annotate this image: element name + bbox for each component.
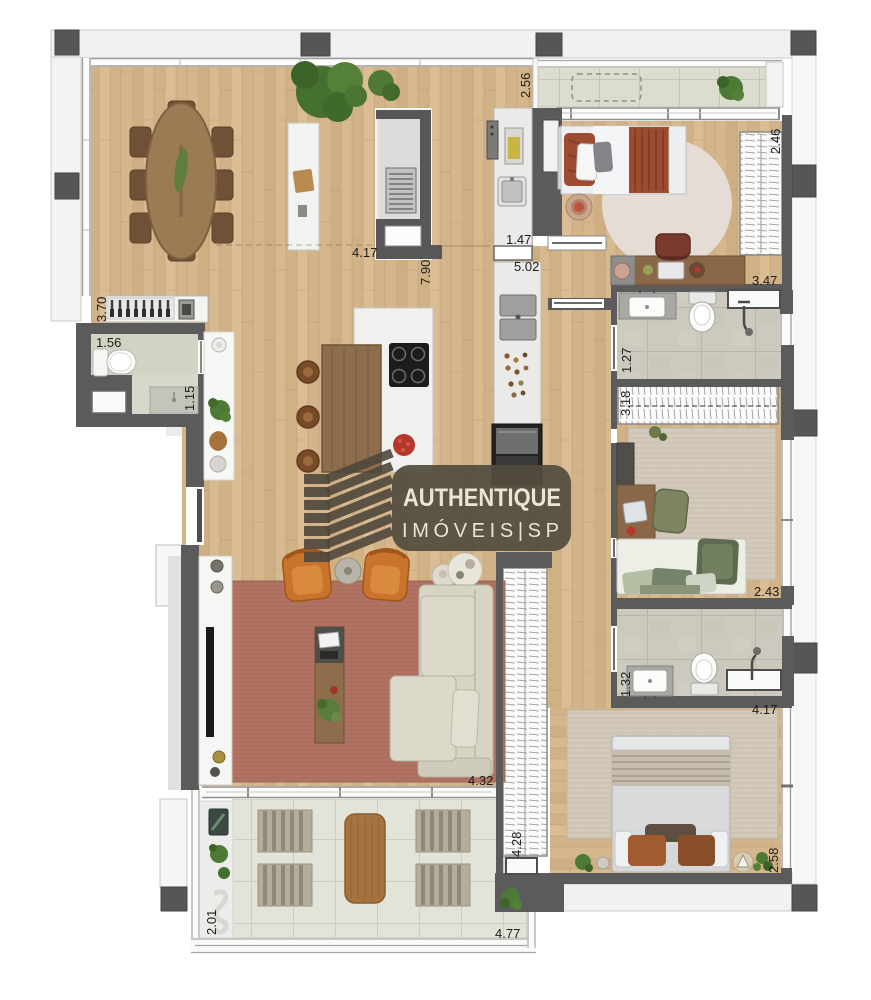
svg-text:3.47: 3.47	[752, 273, 777, 288]
svg-text:7.90: 7.90	[418, 260, 433, 285]
svg-text:4.77: 4.77	[495, 926, 520, 941]
svg-text:2.01: 2.01	[204, 910, 219, 935]
svg-text:2.43: 2.43	[754, 584, 779, 599]
svg-text:4.17: 4.17	[352, 245, 377, 260]
svg-text:1.56: 1.56	[96, 335, 121, 350]
svg-text:4.32: 4.32	[468, 773, 493, 788]
svg-text:3.70: 3.70	[94, 297, 109, 322]
svg-text:IMÓVEIS|SP: IMÓVEIS|SP	[402, 519, 559, 542]
svg-text:4.17: 4.17	[752, 702, 777, 717]
svg-text:1.15: 1.15	[182, 386, 197, 411]
svg-text:2.46: 2.46	[768, 129, 783, 154]
svg-text:2.56: 2.56	[518, 73, 533, 98]
svg-text:3.18: 3.18	[618, 391, 633, 416]
svg-text:5.02: 5.02	[514, 259, 539, 274]
svg-text:4.28: 4.28	[509, 832, 524, 857]
svg-text:2.58: 2.58	[766, 848, 781, 873]
svg-text:1.32: 1.32	[618, 672, 633, 697]
svg-text:1.47: 1.47	[506, 232, 531, 247]
svg-text:AUTHENTIQUE: AUTHENTIQUE	[403, 484, 561, 512]
svg-text:1.27: 1.27	[619, 348, 634, 373]
